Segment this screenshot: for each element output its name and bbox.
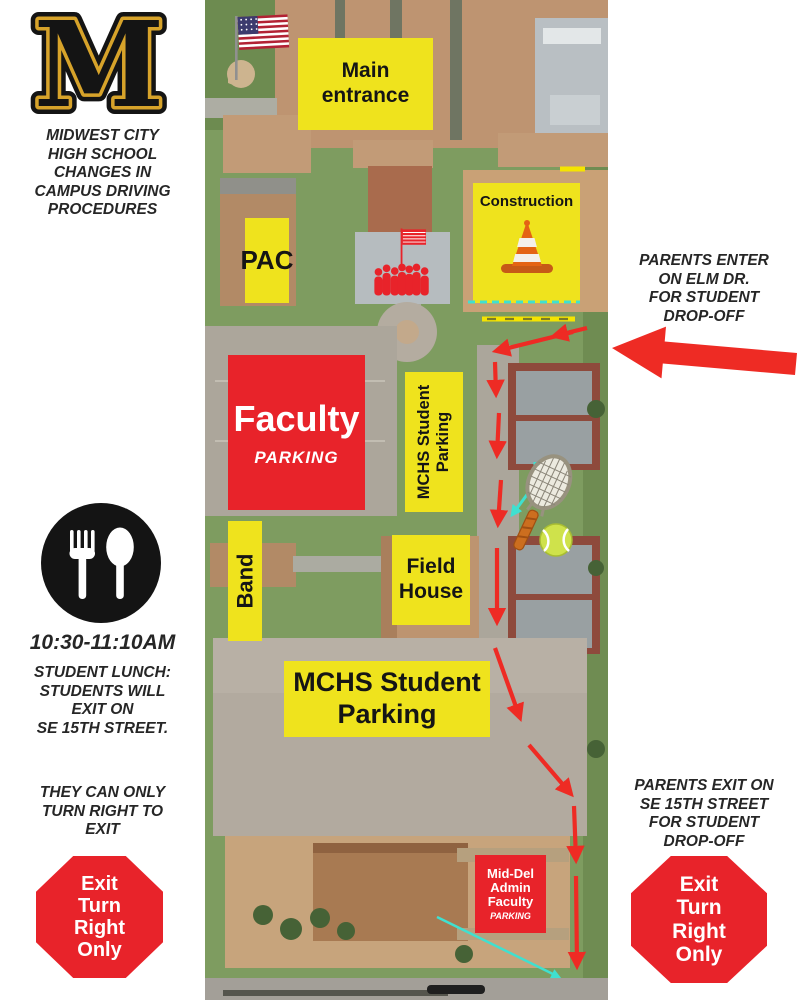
label-construction: Construction [473, 183, 580, 303]
tennis-racket-icon [500, 450, 585, 560]
map-terrain [313, 843, 468, 853]
us-flag-icon [228, 8, 292, 88]
map-terrain [395, 320, 419, 344]
mid-del-parking-text: PARKING [490, 912, 531, 922]
midwest-m-logo: M M M [24, 4, 174, 124]
tree [253, 905, 273, 925]
student-parking-main-text: MCHS Student Parking [293, 667, 480, 731]
flag-assembly-icon [373, 226, 431, 298]
tree [280, 918, 302, 940]
tree [587, 400, 605, 418]
main-entrance-text: Main entrance [322, 59, 410, 109]
map-terrain [550, 95, 600, 125]
label-mid-del-admin: Mid-Del Admin Faculty PARKING [475, 855, 546, 933]
map-terrain [543, 28, 601, 44]
label-band: Band [228, 521, 262, 641]
lunch-time-text: 10:30-11:10AM [0, 630, 205, 655]
map-terrain [450, 0, 462, 140]
exit-stop-sign-left: Exit Turn Right Only [36, 856, 163, 978]
label-field-house: Field House [392, 535, 470, 625]
faculty-text: Faculty [233, 398, 359, 440]
campus-satellite-map: Main entrance Construction PAC Faculty P… [205, 0, 608, 1000]
tree [455, 945, 473, 963]
map-terrain [293, 556, 393, 572]
map-terrain [353, 140, 433, 168]
traffic-cone-icon [499, 216, 555, 276]
construction-text: Construction [480, 193, 573, 211]
fork-and-spoon-icon [40, 502, 162, 624]
faculty-parking-text: PARKING [254, 448, 338, 468]
parents-enter-note: PARENTS ENTER ON ELM DR. FOR STUDENT DRO… [608, 252, 800, 326]
stop-sign-text: Exit Turn Right Only [672, 873, 726, 965]
label-faculty-parking: Faculty PARKING [228, 355, 365, 510]
field-house-text: Field House [399, 555, 463, 605]
pac-text: PAC [241, 245, 294, 276]
tree [588, 560, 604, 576]
tree [587, 740, 605, 758]
road [205, 978, 608, 1000]
label-student-parking-vertical: MCHS Student Parking [405, 372, 463, 512]
tennis-court [516, 371, 592, 415]
exit-stop-sign-right: Exit Turn Right Only [631, 856, 767, 983]
mid-del-text: Mid-Del Admin Faculty [487, 867, 534, 910]
parents-exit-note: PARENTS EXIT ON SE 15TH STREET FOR STUDE… [608, 777, 800, 851]
turn-right-note-text: THEY CAN ONLY TURN RIGHT TO EXIT [0, 784, 205, 840]
map-terrain [498, 133, 608, 167]
band-text: Band [232, 521, 257, 641]
map-terrain [220, 178, 296, 194]
drop-off-left-arrow [608, 320, 798, 382]
road-marking [223, 990, 448, 996]
road-marking [427, 985, 485, 994]
campus-driving-heading: MIDWEST CITY HIGH SCHOOL CHANGES IN CAMP… [0, 127, 205, 220]
label-pac: PAC [245, 218, 289, 303]
lunch-note-text: STUDENT LUNCH: STUDENTS WILL EXIT ON SE … [0, 664, 205, 738]
map-terrain [313, 843, 468, 941]
tree [310, 908, 330, 928]
label-student-parking-main: MCHS Student Parking [284, 661, 490, 737]
stop-sign-text: Exit Turn Right Only [74, 873, 125, 961]
student-parking-vertical-text: MCHS Student Parking [415, 372, 453, 512]
m-logo-letter: M [34, 0, 165, 134]
campus-driving-infographic: M M M MIDWEST CITY HIGH SCHOOL CHANGES I… [0, 0, 800, 1000]
tree [337, 922, 355, 940]
label-main-entrance: Main entrance [298, 38, 433, 130]
tennis-ball-icon [540, 524, 572, 556]
